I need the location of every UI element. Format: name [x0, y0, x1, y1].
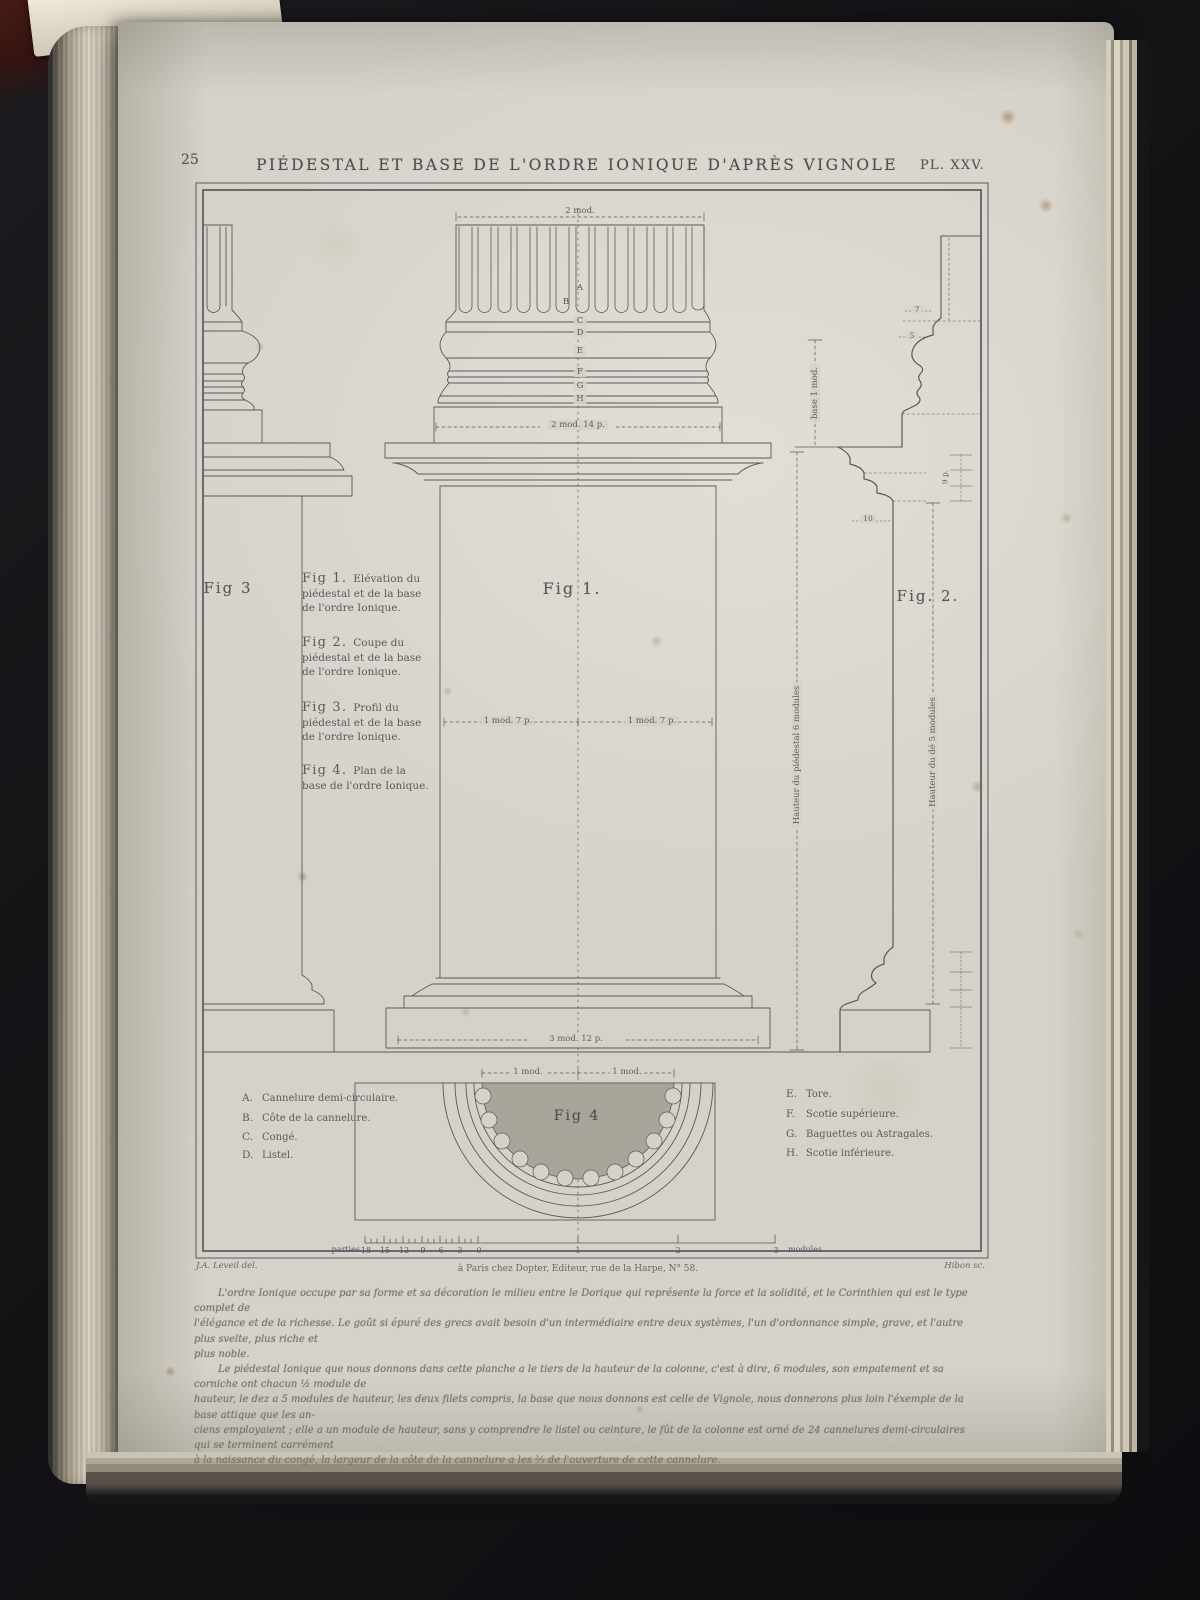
scale-tick-9: 9	[420, 1246, 425, 1255]
part-letter-G: G	[574, 381, 587, 391]
para2-line3: ciens employaient ; elle a un module de …	[194, 1423, 976, 1453]
page-number: 25	[181, 152, 199, 168]
caption-fig2-ref: Fig 2.	[302, 635, 347, 650]
plate-number: PL. XXV.	[920, 158, 985, 173]
scale-module-3: 3	[773, 1246, 778, 1255]
fig2-section-drawing	[790, 236, 981, 1052]
dim-pedestal-height: Hauteur du piédestal 6 modules	[792, 683, 802, 828]
legend-item-G: G.Baguettes ou Astragales.	[786, 1128, 933, 1140]
scale-module-1: 1	[575, 1246, 580, 1255]
fig4-label: Fig 4	[554, 1108, 601, 1124]
dim-die-right: 1 mod. 7 p.	[625, 716, 679, 726]
scale-module-2: 2	[675, 1246, 680, 1255]
legend-item-A: A.Cannelure demi-circulaire.	[242, 1092, 398, 1104]
para1-line3: plus noble.	[194, 1347, 976, 1362]
part-letter-F: F	[574, 367, 586, 377]
caption-fig3: Fig 3.Profil du piédestal et de la base …	[302, 701, 421, 745]
legend-item-F: F.Scotie supérieure.	[786, 1108, 899, 1120]
scale-tick-3: 3	[457, 1246, 462, 1255]
part-letter-C: C	[574, 316, 587, 326]
part-letter-A: A	[577, 283, 583, 293]
fig3-label: Fig 3	[203, 579, 252, 597]
para2-line4: à la naissance du congé, la largeur de l…	[194, 1453, 976, 1468]
dim-fig4-right: 1 mod.	[609, 1067, 644, 1077]
legend-item-D: D.Listel.	[242, 1149, 293, 1161]
scale-unit: modules	[788, 1245, 822, 1254]
plate-title: PIÉDESTAL ET BASE DE L'ORDRE IONIQUE D'A…	[256, 156, 898, 174]
part-letter-D: D	[574, 328, 587, 338]
caption-fig4-ref: Fig 4.	[302, 763, 347, 778]
scale-tick-0: 0	[476, 1246, 481, 1255]
legend-item-H: H.Scotie inférieure.	[786, 1147, 894, 1159]
caption-fig4: Fig 4.Plan de la base de l'ordre Ionique…	[302, 764, 429, 793]
dim-top-width: 2 mod.	[565, 206, 594, 216]
dim-n7: 7	[912, 305, 923, 314]
fig4-plan-drawing	[355, 1069, 715, 1220]
dim-base-height: base 1 mod.	[810, 364, 820, 422]
caption-fig3-ref: Fig 3.	[302, 700, 347, 715]
book-photo: 25 PIÉDESTAL ET BASE DE L'ORDRE IONIQUE …	[0, 0, 1200, 1600]
para1-line2: l'élégance et de la richesse. Le goût si…	[194, 1316, 976, 1346]
caption-fig1-ref: Fig 1.	[302, 571, 347, 586]
scale-bar	[365, 1235, 775, 1243]
para2-line2: hauteur, le dez a 5 modules de hauteur, …	[194, 1392, 976, 1422]
imprint-engraver: Hibon sc.	[944, 1261, 985, 1271]
description-text: L'ordre Ionique occupe par sa forme et s…	[194, 1286, 976, 1468]
dim-n9p: 9 p.	[941, 470, 950, 484]
dim-n10: 10	[860, 514, 876, 523]
para1-line1: L'ordre Ionique occupe par sa forme et s…	[194, 1286, 976, 1316]
scale-tick-18: 18	[361, 1246, 371, 1255]
dim-die-left: 1 mod. 7 p.	[481, 716, 535, 726]
fig1-label: Fig 1.	[543, 579, 602, 598]
dim-die-height: Hauteur du dé 5 modules	[928, 694, 938, 810]
imprint-delineator: J.A. Leveil del.	[196, 1261, 258, 1271]
scale-tick-12: 12	[399, 1246, 409, 1255]
fig1-flutes	[459, 227, 704, 313]
scale-tick-6: 6	[438, 1246, 443, 1255]
dim-base-block-width: 2 mod. 14 p.	[548, 420, 608, 430]
scale-tick-15: 15	[380, 1246, 390, 1255]
legend-item-E: E.Tore.	[786, 1088, 832, 1100]
part-letter-B: B	[563, 297, 569, 307]
fig2-label: Fig. 2.	[897, 587, 960, 605]
dim-bottom-width: 3 mod. 12 p.	[546, 1034, 606, 1044]
dim-n5: 5	[907, 331, 918, 340]
imprint-publisher: à Paris chez Dopter, Editeur, rue de la …	[458, 1264, 698, 1274]
fig1-elevation-drawing	[203, 213, 930, 1052]
part-letter-H: H	[573, 394, 586, 404]
para2-line1: Le piédestal Ionique que nous donnons da…	[194, 1362, 976, 1392]
legend-item-B: B.Côte de la cannelure.	[242, 1112, 371, 1124]
part-letter-E: E	[574, 346, 586, 356]
legend-item-C: C.Congé.	[242, 1131, 298, 1143]
dim-fig4-left: 1 mod.	[510, 1067, 545, 1077]
fig4-shaded-half-disc	[482, 1083, 674, 1179]
scale-caption-left: parties	[332, 1245, 360, 1254]
caption-fig2: Fig 2.Coupe du piédestal et de la base d…	[302, 636, 421, 680]
caption-fig1: Fig 1.Elévation du piédestal et de la ba…	[302, 572, 421, 616]
